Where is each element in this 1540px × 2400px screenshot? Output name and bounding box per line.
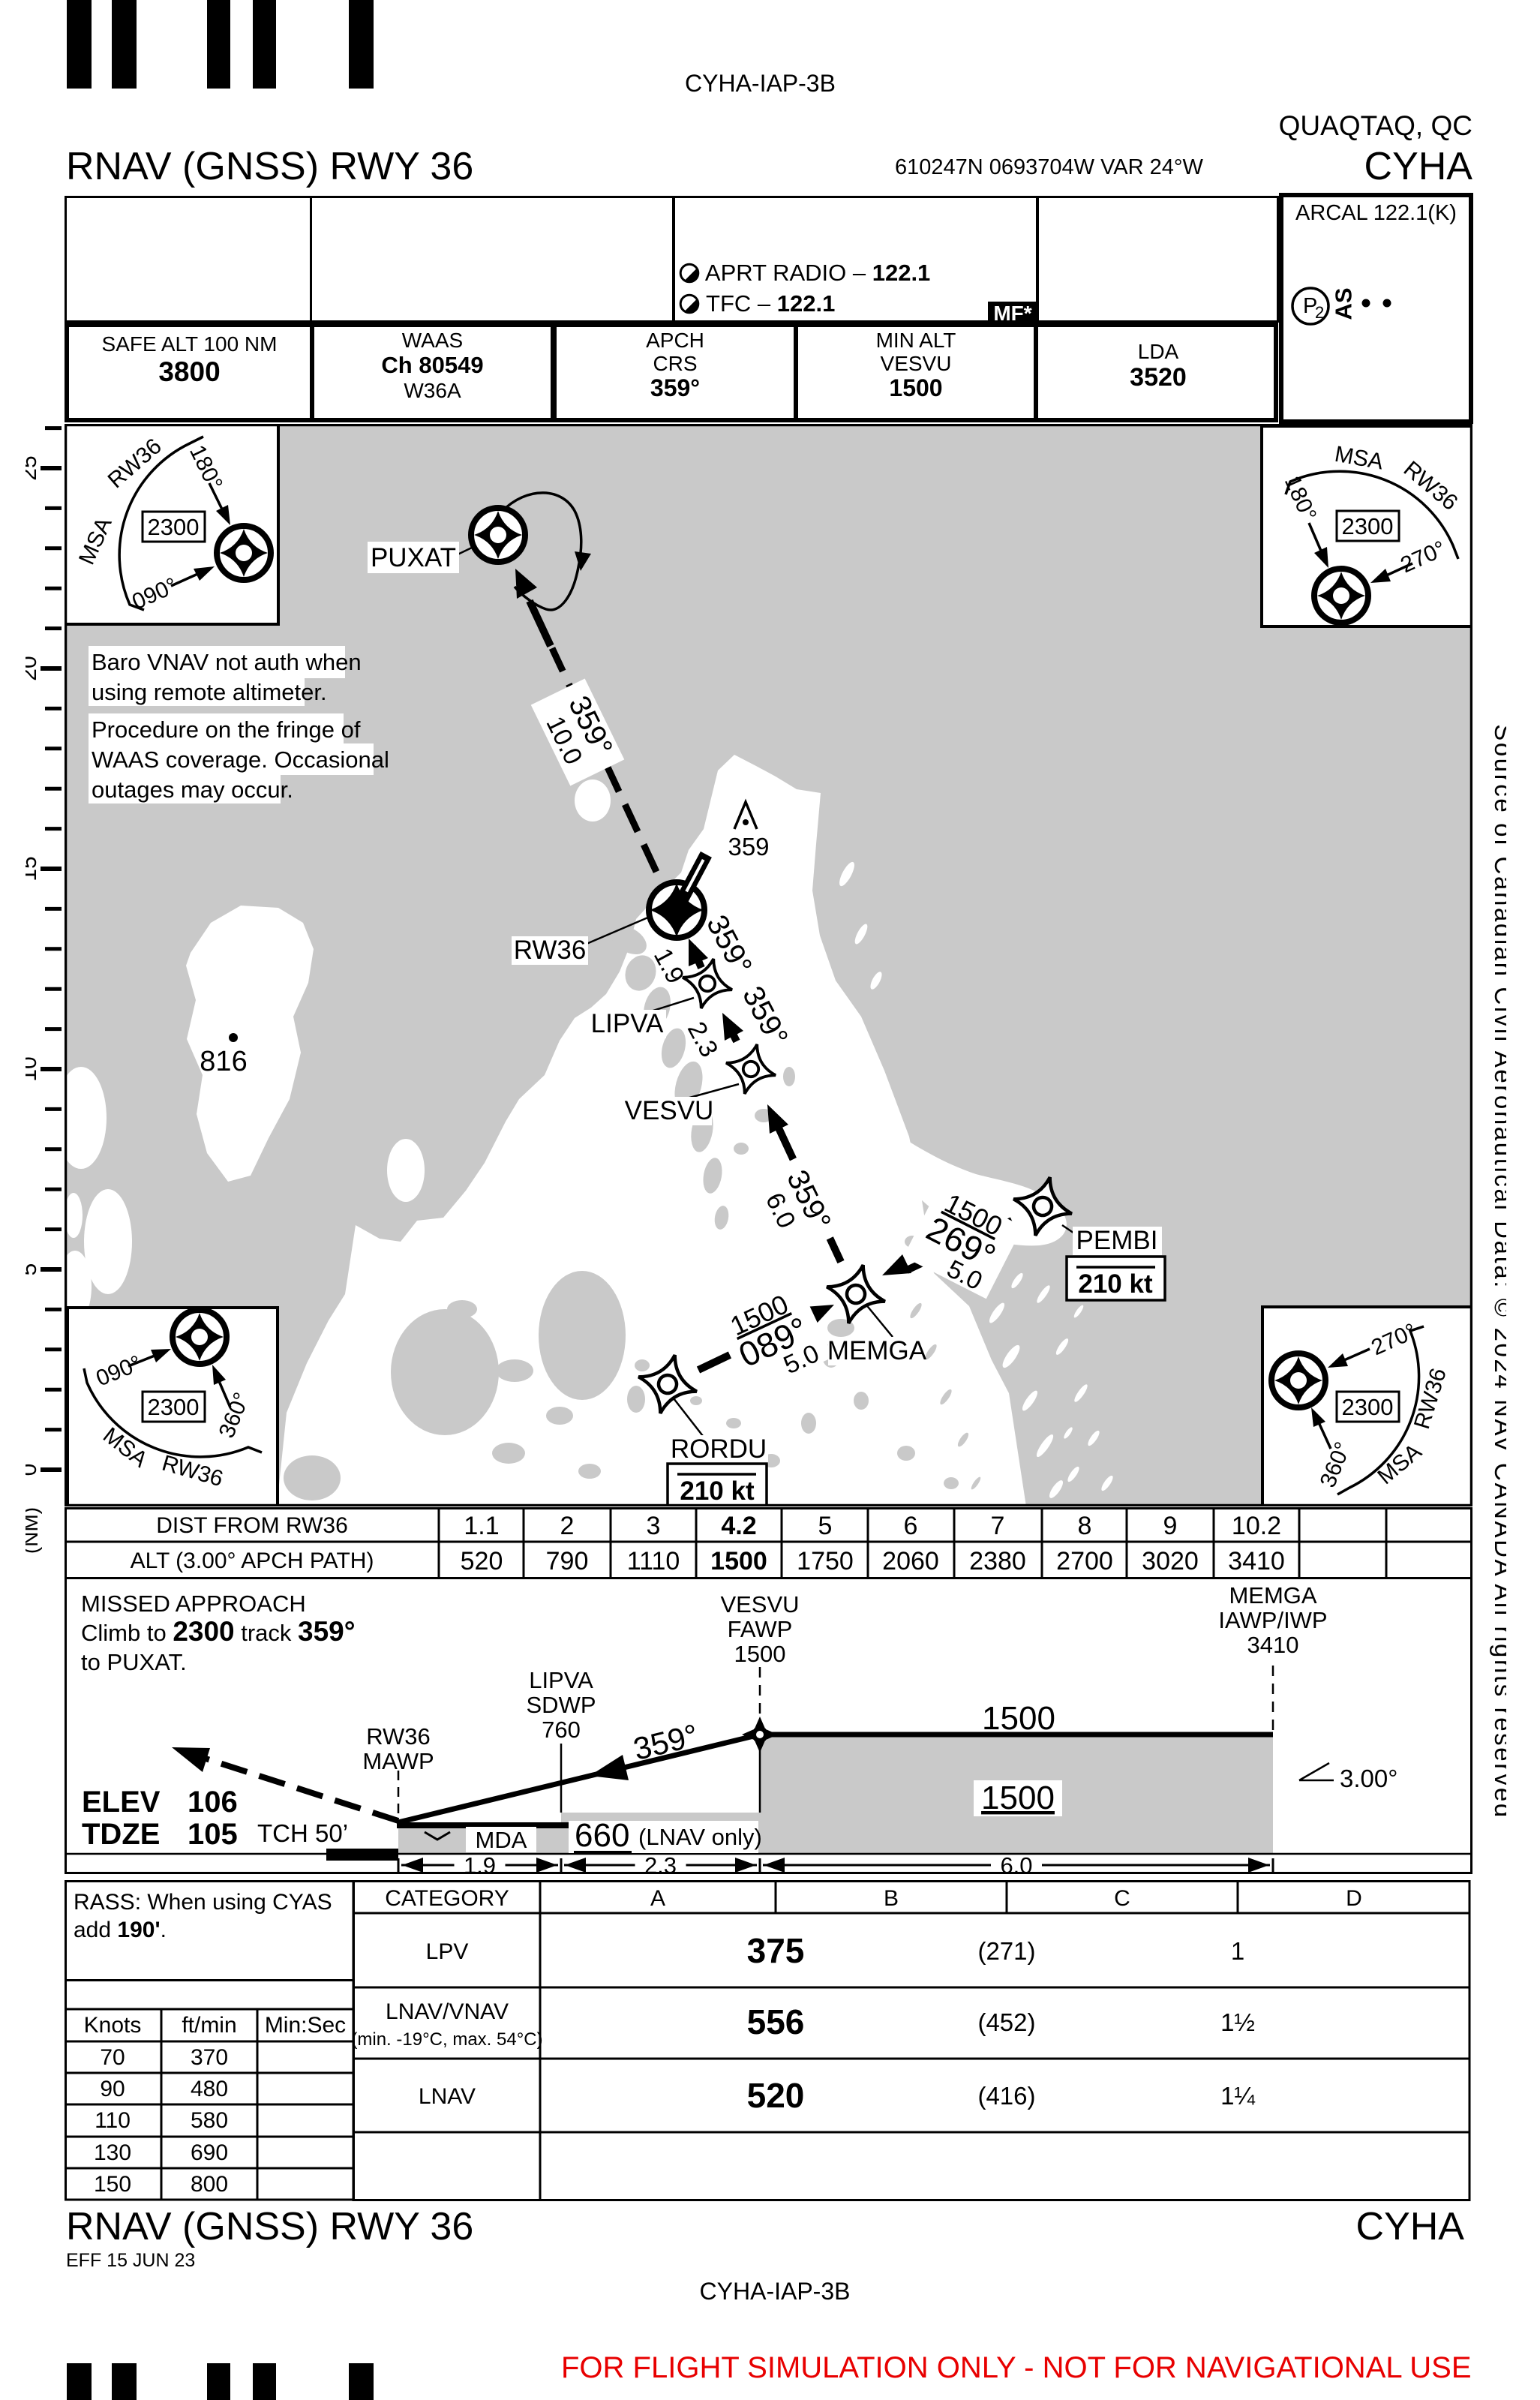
svg-text:2: 2: [1315, 303, 1324, 322]
svg-text:0: 0: [26, 1464, 41, 1476]
svg-text:1.1: 1.1: [464, 1512, 499, 1540]
svg-text:106: 106: [188, 1786, 238, 1819]
svg-text:10.2: 10.2: [1232, 1512, 1281, 1540]
svg-text:PEMBI: PEMBI: [1076, 1226, 1158, 1255]
svg-text:MEMGA: MEMGA: [827, 1336, 927, 1365]
svg-text:4.2: 4.2: [721, 1512, 756, 1540]
svg-text:105: 105: [188, 1818, 238, 1851]
svg-text:LIPVA: LIPVA: [591, 1009, 664, 1038]
svg-text:2380: 2380: [969, 1547, 1026, 1575]
svg-text:1750: 1750: [797, 1547, 854, 1575]
svg-text:2300: 2300: [148, 1394, 200, 1420]
svg-text:6: 6: [904, 1512, 918, 1540]
svg-text:MISSED APPROACH: MISSED APPROACH: [81, 1590, 306, 1617]
svg-text:556: 556: [747, 2002, 805, 2041]
svg-text:(NM): (NM): [26, 1507, 42, 1554]
svg-text:MEMGA: MEMGA: [1229, 1582, 1316, 1609]
svg-text:(min. -19°C, max. 54°C): (min. -19°C, max. 54°C): [351, 2029, 542, 2050]
svg-text:WAAS coverage. Occasional: WAAS coverage. Occasional: [92, 746, 389, 773]
svg-text:Source of Canadian Civil Aeron: Source of Canadian Civil Aeronautical Da…: [1490, 724, 1506, 1819]
svg-text:6.0: 6.0: [1000, 1852, 1032, 1874]
svg-text:RW36: RW36: [514, 936, 587, 965]
svg-text:15: 15: [26, 856, 41, 881]
svg-text:9: 9: [1163, 1512, 1178, 1540]
svg-text:25: 25: [26, 455, 41, 480]
svg-text:RW36: RW36: [366, 1723, 431, 1750]
svg-text:(416): (416): [977, 2082, 1035, 2110]
svg-text:outages may occur.: outages may occur.: [92, 776, 293, 803]
svg-text:690: 690: [191, 2140, 228, 2165]
svg-text:760: 760: [542, 1717, 581, 1743]
svg-text:DIST FROM RW36: DIST FROM RW36: [156, 1513, 348, 1538]
svg-text:5: 5: [26, 1263, 41, 1276]
svg-text:MAWP: MAWP: [362, 1748, 434, 1774]
svg-text:2300: 2300: [1342, 513, 1394, 539]
svg-text:580: 580: [191, 2108, 228, 2133]
svg-text:359: 359: [728, 833, 769, 861]
svg-text:210 kt: 210 kt: [1078, 1269, 1153, 1299]
svg-text:AS: AS: [1331, 287, 1357, 320]
svg-text:2: 2: [560, 1512, 575, 1540]
svg-text:VESVU: VESVU: [625, 1096, 714, 1125]
svg-text:LNAV/VNAV: LNAV/VNAV: [386, 1999, 509, 2024]
svg-text:2300: 2300: [148, 514, 200, 540]
svg-text:359°: 359°: [630, 1717, 702, 1767]
svg-text:using remote altimeter.: using remote altimeter.: [92, 679, 327, 705]
svg-text:Baro VNAV not auth when: Baro VNAV not auth when: [92, 649, 362, 675]
svg-text:Climb to 2300 track 359°: Climb to 2300 track 359°: [81, 1616, 356, 1647]
svg-text:3410: 3410: [1228, 1547, 1285, 1575]
svg-text:LIPVA: LIPVA: [529, 1667, 593, 1693]
svg-text:Knots: Knots: [84, 2013, 142, 2038]
svg-text:VESVU: VESVU: [720, 1591, 799, 1618]
svg-text:ELEV: ELEV: [82, 1786, 161, 1819]
svg-text:ft/min: ft/min: [182, 2013, 236, 2038]
svg-text:PUXAT: PUXAT: [371, 543, 456, 572]
svg-text:370: 370: [191, 2045, 228, 2070]
svg-text:2.3: 2.3: [644, 1852, 677, 1874]
svg-text:C: C: [1114, 1886, 1130, 1911]
svg-text:D: D: [1346, 1886, 1362, 1911]
svg-text:TDZE: TDZE: [82, 1818, 160, 1851]
svg-text:CATEGORY: CATEGORY: [385, 1886, 509, 1911]
svg-text:MDA: MDA: [476, 1827, 527, 1853]
svg-text:SDWP: SDWP: [527, 1692, 596, 1718]
svg-text:add 190'.: add 190'.: [74, 1918, 167, 1942]
svg-text:130: 130: [94, 2140, 131, 2165]
svg-text:TCH 50’: TCH 50’: [257, 1819, 348, 1847]
svg-text:1500: 1500: [710, 1547, 767, 1575]
svg-text:(271): (271): [977, 1937, 1035, 1965]
svg-text:520: 520: [747, 2076, 805, 2115]
svg-text:3020: 3020: [1142, 1547, 1199, 1575]
svg-text:816: 816: [200, 1046, 247, 1077]
svg-text:1¼: 1¼: [1220, 2082, 1255, 2110]
svg-text:RASS: When using CYAS: RASS: When using CYAS: [74, 1890, 332, 1915]
svg-text:1500: 1500: [982, 1700, 1055, 1737]
svg-text:660: 660: [575, 1817, 629, 1854]
svg-text:1500: 1500: [981, 1780, 1055, 1816]
svg-text:FAWP: FAWP: [728, 1616, 793, 1642]
svg-text:1: 1: [1231, 1937, 1244, 1965]
svg-text:(LNAV only): (LNAV only): [638, 1824, 762, 1850]
svg-text:20: 20: [26, 656, 41, 680]
svg-text:1110: 1110: [627, 1547, 680, 1575]
svg-text:2300: 2300: [1342, 1394, 1394, 1420]
svg-text:8: 8: [1078, 1512, 1092, 1540]
svg-text:1500: 1500: [734, 1641, 786, 1667]
svg-text:RORDU: RORDU: [671, 1434, 767, 1464]
svg-text:1½: 1½: [1220, 2008, 1255, 2036]
svg-text:to PUXAT.: to PUXAT.: [81, 1649, 187, 1675]
svg-text:(452): (452): [977, 2008, 1035, 2036]
svg-text:ALT (3.00° APCH PATH): ALT (3.00° APCH PATH): [131, 1548, 374, 1573]
svg-text:7: 7: [991, 1512, 1005, 1540]
svg-text:5: 5: [818, 1512, 833, 1540]
svg-text:3.00°: 3.00°: [1340, 1765, 1397, 1792]
svg-text:1.9: 1.9: [464, 1852, 496, 1874]
svg-text:2700: 2700: [1056, 1547, 1113, 1575]
svg-text:3410: 3410: [1247, 1632, 1299, 1658]
svg-text:A: A: [650, 1886, 665, 1911]
svg-text:LPV: LPV: [426, 1939, 469, 1964]
svg-text:110: 110: [95, 2108, 131, 2133]
svg-text:3: 3: [647, 1512, 661, 1540]
svg-text:IAWP/IWP: IAWP/IWP: [1218, 1607, 1327, 1633]
svg-text:790: 790: [546, 1547, 589, 1575]
svg-text:800: 800: [191, 2172, 228, 2197]
svg-text:210 kt: 210 kt: [680, 1476, 755, 1506]
svg-text:90: 90: [100, 2077, 125, 2101]
svg-text:B: B: [884, 1886, 899, 1911]
svg-text:480: 480: [191, 2077, 228, 2101]
svg-text:10: 10: [26, 1056, 41, 1081]
svg-text:2060: 2060: [882, 1547, 939, 1575]
svg-text:Procedure on the fringe of: Procedure on the fringe of: [92, 716, 361, 743]
svg-text:150: 150: [94, 2172, 131, 2197]
svg-text:70: 70: [100, 2045, 125, 2070]
svg-text:375: 375: [747, 1931, 805, 1970]
svg-text:Min:Sec: Min:Sec: [265, 2013, 346, 2038]
svg-text:520: 520: [461, 1547, 503, 1575]
svg-text:LNAV: LNAV: [419, 2084, 476, 2109]
